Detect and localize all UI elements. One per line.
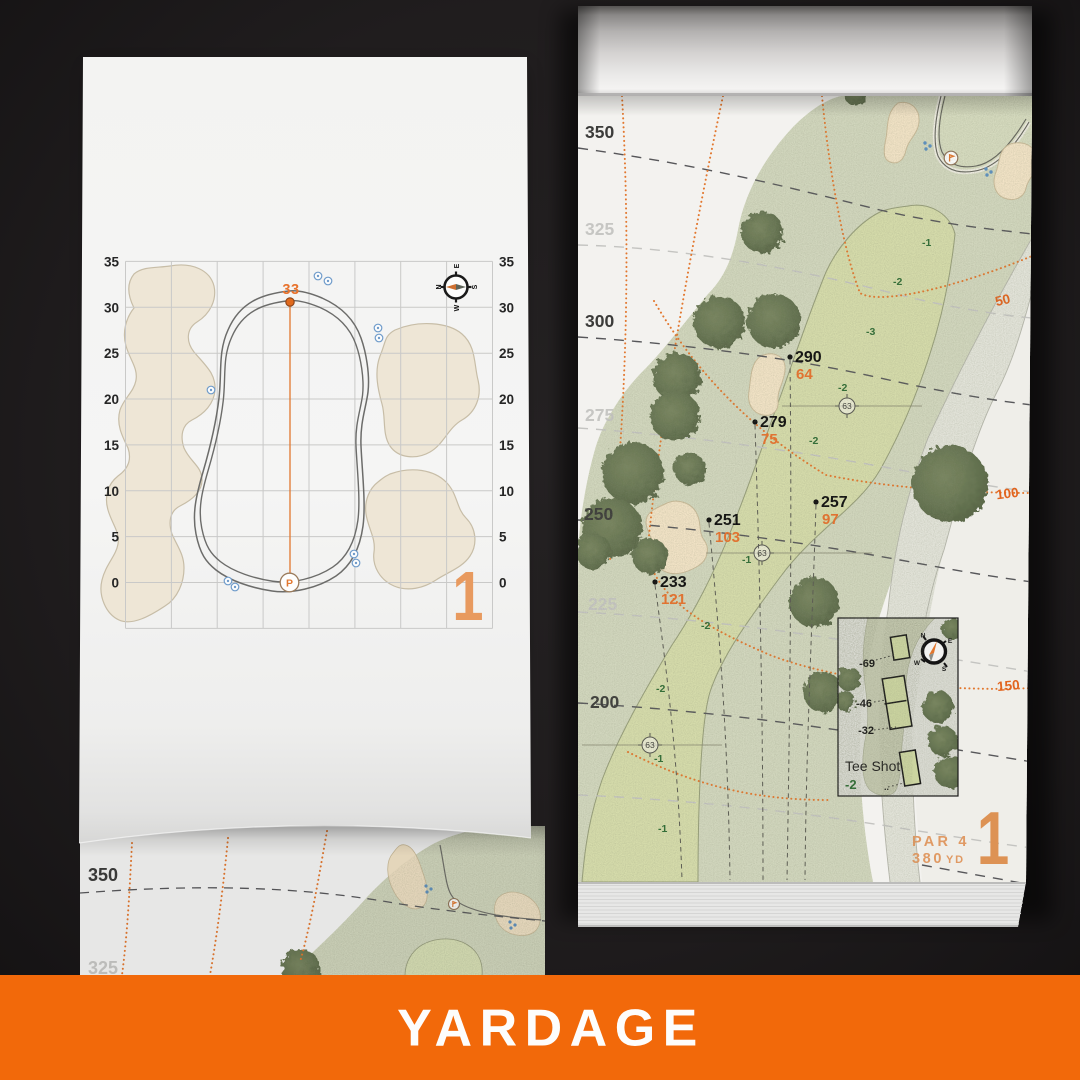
- svg-text:E: E: [948, 638, 953, 645]
- svg-text:380YD: 380YD: [912, 851, 965, 867]
- svg-text:P: P: [286, 578, 293, 590]
- svg-text:25: 25: [499, 346, 515, 361]
- svg-text:YARDAGE: YARDAGE: [397, 1000, 705, 1058]
- svg-text:5: 5: [499, 530, 507, 545]
- svg-text:350: 350: [585, 122, 614, 142]
- svg-text:300: 300: [585, 311, 614, 331]
- svg-text:1: 1: [452, 558, 483, 635]
- svg-text:E: E: [454, 263, 461, 268]
- svg-text:30: 30: [104, 300, 119, 315]
- svg-text:1: 1: [977, 797, 1010, 881]
- svg-text:150: 150: [996, 677, 1020, 694]
- svg-text:S: S: [942, 666, 947, 673]
- svg-text:35: 35: [499, 254, 515, 269]
- svg-text:25: 25: [104, 346, 120, 361]
- svg-text:10: 10: [499, 484, 514, 499]
- svg-text:N: N: [436, 284, 443, 289]
- svg-text:W: W: [454, 304, 461, 311]
- svg-text:20: 20: [499, 392, 514, 407]
- svg-text:10: 10: [104, 484, 119, 499]
- svg-text:PAR 4: PAR 4: [912, 834, 970, 850]
- svg-text:0: 0: [499, 576, 507, 591]
- svg-text:S: S: [472, 284, 479, 289]
- svg-text:15: 15: [104, 438, 120, 453]
- svg-text:5: 5: [111, 530, 119, 545]
- svg-text:15: 15: [499, 438, 515, 453]
- svg-text:33: 33: [282, 282, 299, 298]
- svg-text:35: 35: [104, 254, 120, 269]
- svg-text:100: 100: [995, 485, 1019, 503]
- svg-text:0: 0: [111, 576, 119, 591]
- svg-text:325: 325: [585, 219, 614, 239]
- svg-text:20: 20: [104, 392, 119, 407]
- svg-text:30: 30: [499, 300, 514, 315]
